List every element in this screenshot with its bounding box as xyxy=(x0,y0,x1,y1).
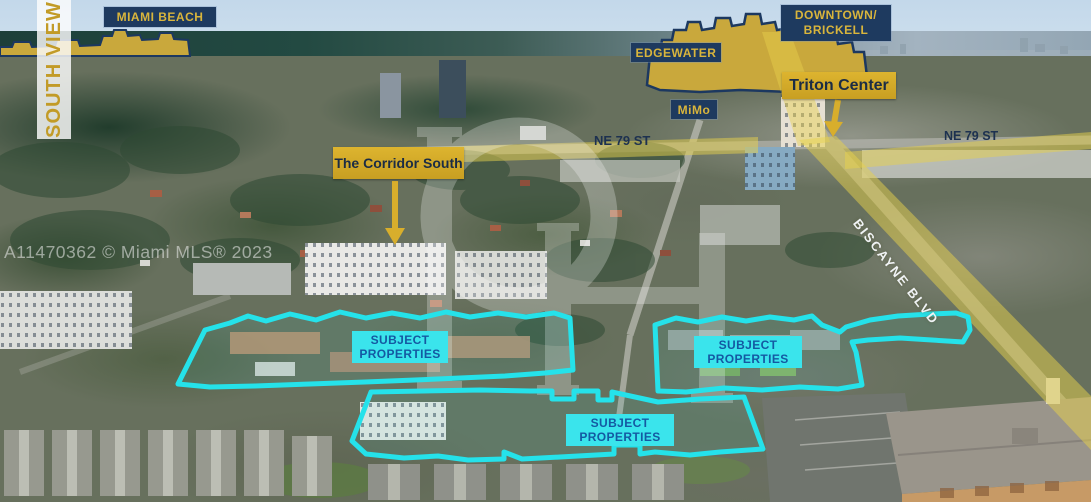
subject-properties-label-south: SUBJECT PROPERTIES xyxy=(566,414,674,446)
area-banner-mimo: MiMo xyxy=(671,100,717,119)
area-banner-miami-beach: MIAMI BEACH xyxy=(104,7,216,27)
subject-label-line2: PROPERTIES xyxy=(352,347,448,361)
mls-listing-watermark: A11470362 © Miami MLS® 2023 xyxy=(4,242,273,263)
street-label-ne79-east: NE 79 ST xyxy=(944,129,998,143)
subject-properties-label-east: SUBJECT PROPERTIES xyxy=(694,336,802,368)
triton-center-label: Triton Center xyxy=(789,77,889,95)
landmark-banner-triton-center: Triton Center xyxy=(782,72,896,99)
subject-label-line2: PROPERTIES xyxy=(566,430,674,444)
subject-label-line1: SUBJECT xyxy=(694,338,802,352)
subject-label-line1: SUBJECT xyxy=(566,416,674,430)
miami-beach-label: MIAMI BEACH xyxy=(117,10,204,24)
subject-properties-label-west: SUBJECT PROPERTIES xyxy=(352,331,448,363)
area-banner-downtown-brickell: DOWNTOWN/ BRICKELL xyxy=(781,5,891,41)
subject-label-line2: PROPERTIES xyxy=(694,352,802,366)
edgewater-label: EDGEWATER xyxy=(636,46,717,60)
downtown-label-line1: DOWNTOWN/ xyxy=(795,8,877,23)
subject-outline-south xyxy=(352,390,763,460)
subject-label-line1: SUBJECT xyxy=(352,333,448,347)
area-banner-edgewater: EDGEWATER xyxy=(631,43,721,62)
aerial-listing-photo: SOUTH VIEW A11470362 © Miami MLS® 2023 M… xyxy=(0,0,1091,502)
mimo-label: MiMo xyxy=(678,103,711,117)
view-direction-bar: SOUTH VIEW xyxy=(37,0,71,139)
view-direction-label: SOUTH VIEW xyxy=(43,1,66,138)
downtown-label-line2: BRICKELL xyxy=(804,23,869,38)
corridor-south-label: The Corridor South xyxy=(334,155,462,171)
distant-city xyxy=(860,38,1091,56)
street-label-ne79-west: NE 79 ST xyxy=(594,133,650,148)
corridor-arrow-icon xyxy=(385,181,405,245)
miami-beach-skyline xyxy=(0,30,190,56)
landmark-banner-corridor-south: The Corridor South xyxy=(333,147,464,179)
